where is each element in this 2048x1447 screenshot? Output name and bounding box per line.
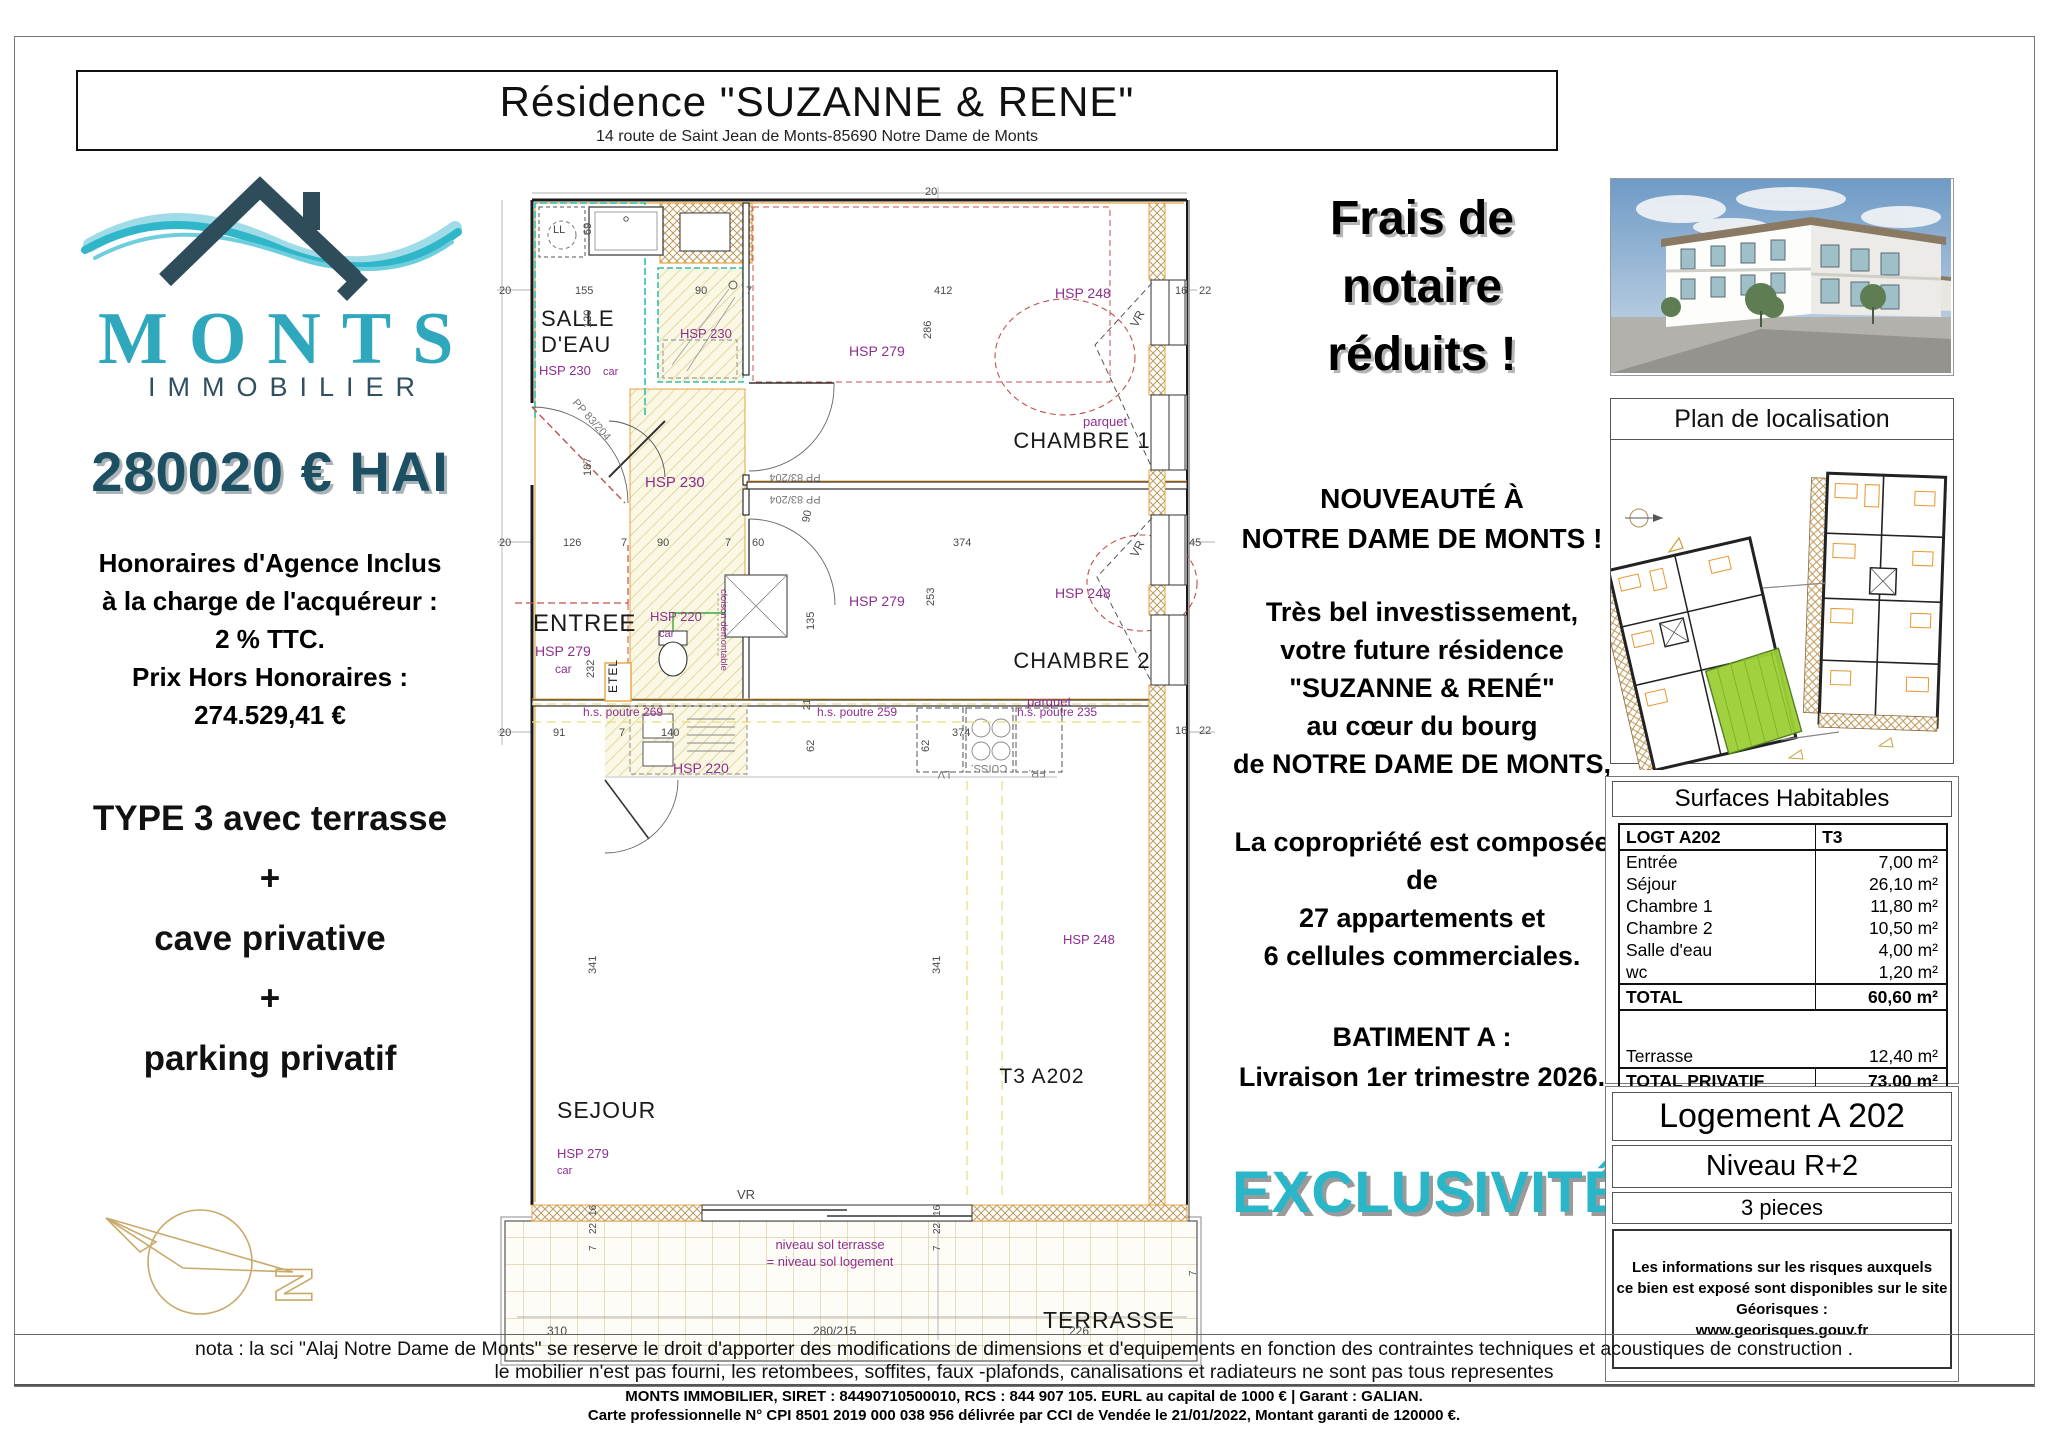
table-spacer [1620,1011,1946,1045]
exclusive-label: EXCLUSIVITÉ [1232,1159,1612,1226]
svg-text:16: 16 [932,1204,943,1216]
svg-text:SALLE: SALLE [541,306,615,331]
svg-text:140: 140 [661,727,679,739]
frame-bottom [14,1384,2034,1386]
svg-text:20: 20 [499,285,511,297]
left-column: MONTS IMMOBILIER 280020 € HAI Honoraires… [55,150,485,1098]
building-photo [1610,178,1954,376]
svg-text:62: 62 [920,740,932,752]
svg-text:CHAMBRE 1: CHAMBRE 1 [1013,428,1150,453]
nota-separator [14,1334,2034,1335]
listing-sheet: Résidence "SUZANNE & RENE" 14 route de S… [0,0,2048,1447]
svg-text:PP 83/204: PP 83/204 [769,471,820,483]
svg-text:16: 16 [588,1204,599,1216]
news-block: NOUVEAUTÉ ÀNOTRE DAME DE MONTS ! [1232,479,1612,559]
localisation-panel: Plan de localisation [1610,398,1954,764]
svg-text:h.s. poutre 235: h.s. poutre 235 [1017,705,1097,719]
nota-block: nota : la sci "Alaj Notre Dame de Monts"… [14,1338,2034,1384]
svg-text:310: 310 [547,1324,567,1338]
svg-text:PP 83/204: PP 83/204 [769,493,820,505]
address: 14 route de Saint Jean de Monts-85690 No… [78,128,1556,146]
svg-text:car: car [603,366,619,378]
table-row: wc1,20 m² [1620,961,1946,983]
svg-text:VR: VR [737,1187,755,1202]
svg-text:135: 135 [805,612,817,630]
svg-text:CHAMBRE 2: CHAMBRE 2 [1013,648,1150,673]
svg-text:TERRASSE: TERRASSE [1043,1307,1175,1333]
svg-text:ETEL: ETEL [606,659,620,693]
pitch-block: Très bel investissement,votre future rés… [1232,593,1612,783]
svg-text:90: 90 [657,537,669,549]
svg-text:HSP 279: HSP 279 [557,1146,609,1161]
svg-text:T3 A202: T3 A202 [999,1065,1084,1088]
svg-text:16: 16 [1175,285,1187,297]
svg-text:253: 253 [925,588,937,606]
svg-text:120: 120 [582,310,594,328]
header: Résidence "SUZANNE & RENE" 14 route de S… [76,70,1558,151]
fees-block: Honoraires d'Agence Inclusà la charge de… [55,544,485,734]
svg-text:= niveau sol logement: = niveau sol logement [767,1254,894,1269]
svg-text:126: 126 [563,537,581,549]
page-title: Résidence "SUZANNE & RENE" [78,78,1556,126]
svg-text:HSP 248: HSP 248 [1055,585,1111,601]
surfaces-panel: Surfaces Habitables LOGT A202 T3 Entrée7… [1605,776,1959,1084]
svg-text:22: 22 [588,1222,599,1234]
svg-text:HSP 230: HSP 230 [680,326,732,341]
svg-text:7: 7 [1188,1270,1199,1276]
svg-text:HSP 279: HSP 279 [535,643,591,659]
svg-text:HSP 220: HSP 220 [673,760,729,776]
svg-text:N: N [264,1266,322,1304]
unit-rooms: 3 pieces [1612,1192,1952,1224]
svg-text:D'EAU: D'EAU [541,332,611,357]
svg-text:90: 90 [695,285,707,297]
svg-text:ENTREE: ENTREE [533,610,636,637]
svg-text:HSP 220: HSP 220 [650,609,702,624]
svg-text:parquet: parquet [1083,414,1127,429]
table-row: Entrée7,00 m² [1620,851,1946,873]
svg-text:7: 7 [932,1245,943,1251]
svg-text:FR.: FR. [1028,767,1046,779]
table-row: Chambre 111,80 m² [1620,895,1946,917]
svg-text:20: 20 [499,537,511,549]
unit-level: Niveau R+2 [1612,1145,1952,1188]
svg-text:226: 226 [1069,1324,1089,1338]
svg-text:7: 7 [725,537,731,549]
svg-text:HSP 230: HSP 230 [539,363,591,378]
type-block: TYPE 3 avec terrasse+cave privative+park… [55,798,485,1080]
svg-text:CUISS.: CUISS. [971,762,1008,774]
notary-banner: Frais denotaireréduits ! [1232,185,1612,389]
compass-icon: N [88,1180,338,1355]
svg-text:h.s. poutre 269: h.s. poutre 269 [583,705,663,719]
svg-text:232: 232 [585,660,597,678]
legal-footer: MONTS IMMOBILIER, SIRET : 84490710500010… [0,1388,2048,1426]
svg-text:7: 7 [619,727,625,739]
svg-text:341: 341 [931,956,943,974]
svg-text:374: 374 [953,537,971,549]
copro-block: La copropriété est composée de27 apparte… [1232,823,1612,975]
localisation-title: Plan de localisation [1611,399,1953,440]
svg-text:187: 187 [582,458,594,476]
svg-text:h.s. poutre 259: h.s. poutre 259 [817,705,897,719]
delivery-block: BATIMENT A :Livraison 1er trimestre 2026… [1232,1017,1612,1097]
svg-text:22: 22 [1199,285,1211,297]
surfaces-title: Surfaces Habitables [1612,781,1952,817]
table-header: LOGT A202 T3 [1620,825,1946,851]
table-row: Chambre 210,50 m² [1620,917,1946,939]
svg-text:341: 341 [587,956,599,974]
svg-text:69: 69 [582,223,594,235]
floor-plan: SALLED'EAUENTREECHAMBRE 1CHAMBRE 2SEJOUR… [497,185,1227,1390]
table-header-right: T3 [1816,825,1946,849]
localisation-map [1611,440,1950,770]
table-row: Salle d'eau4,00 m² [1620,939,1946,961]
svg-text:LL: LL [553,224,565,236]
unit-name: Logement A 202 [1612,1092,1952,1141]
surfaces-table: LOGT A202 T3 Entrée7,00 m²Séjour26,10 m²… [1618,823,1948,1096]
price: 280020 € HAI [55,439,485,504]
svg-text:7: 7 [746,285,752,297]
svg-text:LV: LV [937,768,950,780]
svg-text:45: 45 [1189,537,1201,549]
svg-text:16: 16 [1175,725,1187,737]
svg-text:374: 374 [952,727,970,739]
svg-text:155: 155 [575,285,593,297]
promo-column: Frais denotaireréduits ! NOUVEAUTÉ ÀNOTR… [1232,185,1612,1226]
svg-text:20: 20 [499,727,511,739]
svg-text:22: 22 [1199,725,1211,737]
svg-text:7: 7 [588,1245,599,1251]
svg-text:280/215: 280/215 [813,1324,857,1338]
table-row-terrace: Terrasse 12,40 m² [1620,1045,1946,1067]
svg-text:21: 21 [802,698,813,710]
svg-text:412: 412 [934,285,952,297]
svg-text:HSP 279: HSP 279 [849,593,905,609]
svg-text:20: 20 [925,186,937,198]
svg-text:HSP 230: HSP 230 [645,474,705,491]
svg-text:HSP 248: HSP 248 [1055,285,1111,301]
svg-text:7: 7 [621,537,627,549]
svg-text:60: 60 [752,537,764,549]
svg-text:cloison démontable: cloison démontable [718,589,729,671]
agency-logo-icon: MONTS IMMOBILIER [70,150,470,400]
svg-text:HSP 248: HSP 248 [1063,932,1115,947]
brand-name: MONTS [98,298,470,380]
table-header-left: LOGT A202 [1620,825,1816,849]
svg-text:SEJOUR: SEJOUR [557,1097,656,1123]
svg-text:HSP 279: HSP 279 [849,343,905,359]
brand-subtitle: IMMOBILIER [148,372,427,400]
svg-text:niveau sol terrasse: niveau sol terrasse [775,1237,884,1252]
table-row-total: TOTAL 60,60 m² [1620,983,1946,1011]
svg-text:car: car [659,628,675,640]
svg-text:car: car [557,1165,573,1177]
svg-text:90: 90 [800,509,814,523]
svg-text:62: 62 [805,740,817,752]
table-row: Séjour26,10 m² [1620,873,1946,895]
svg-text:22: 22 [932,1222,943,1234]
svg-text:91: 91 [553,727,565,739]
svg-text:car: car [555,662,572,676]
svg-text:286: 286 [922,321,934,339]
